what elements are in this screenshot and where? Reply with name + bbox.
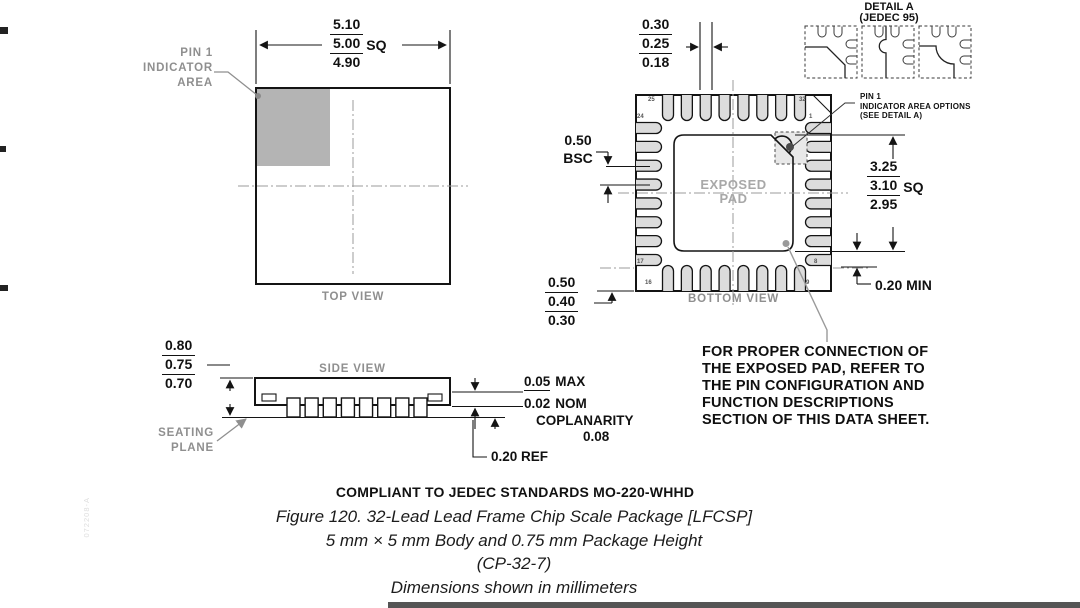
- bottom-view-label: BOTTOM VIEW: [636, 293, 831, 305]
- dim-lead-pitch: 0.50 BSC: [552, 132, 604, 168]
- page-edge-mark: [0, 27, 8, 34]
- lfcsp-package-outline-drawing: PIN 1 INDICATOR AREA TOP VIEW 5.10 5.00S…: [0, 0, 1080, 608]
- dim-lead-thickness: 0.20 REF: [491, 449, 548, 464]
- detail-a-option-1: [805, 26, 857, 78]
- pin1-options-label-line1: PIN 1: [860, 92, 881, 102]
- jedec-compliance-note: COMPLIANT TO JEDEC STANDARDS MO-220-WHHD: [215, 484, 815, 500]
- detail-a-lead-notches: [818, 27, 971, 65]
- exposed-pad-note-line2: THE EXPOSED PAD, REFER TO: [702, 361, 925, 377]
- page-edge-mark: [0, 146, 6, 152]
- pin-number-8: 8: [814, 259, 817, 265]
- exposed-pad-label-line1: EXPOSED: [674, 177, 793, 192]
- detail-a-option-2: [862, 26, 914, 78]
- dim-package-height: 0.80 0.75 0.70: [162, 337, 195, 393]
- side-view-label: SIDE VIEW: [255, 363, 450, 375]
- pin-number-25: 25: [648, 97, 655, 103]
- top-view-label: TOP VIEW: [256, 291, 450, 303]
- exposed-pad-note-line1: FOR PROPER CONNECTION OF: [702, 344, 928, 360]
- dim-lead-width: 0.30 0.25 0.18: [639, 16, 672, 72]
- coplanarity-value: 0.08: [583, 429, 609, 444]
- drawing-revision-watermark: 072208-A: [82, 497, 91, 538]
- exposed-pad-note-dot: [783, 240, 790, 247]
- seating-plane-label-line2: PLANE: [130, 442, 214, 454]
- pin1-options-label-line2: INDICATOR AREA OPTIONS: [860, 102, 971, 112]
- pin1-leader-dot: [255, 93, 261, 99]
- page-edge-mark: [0, 285, 8, 291]
- pin-number-32: 32: [799, 97, 806, 103]
- detail-a-option-3: [919, 26, 971, 78]
- pin1-options-label-line3: (SEE DETAIL A): [860, 111, 922, 121]
- pin-number-24: 24: [637, 114, 644, 120]
- pin1-indicator-dot: [786, 143, 794, 151]
- pin-number-1: 1: [809, 114, 812, 120]
- pin1-indicator-area-label-line1: PIN 1: [133, 47, 213, 59]
- pin-number-16: 16: [645, 280, 652, 286]
- pin1-indicator-shaded-area: [257, 89, 330, 166]
- exposed-pad-note-line4: FUNCTION DESCRIPTIONS: [702, 395, 894, 411]
- dim-standoff-max: 0.05MAX: [524, 374, 585, 391]
- exposed-pad-note-line3: THE PIN CONFIGURATION AND: [702, 378, 925, 394]
- figure-caption-package-code: (CP-32-7): [164, 554, 864, 574]
- pin-number-17: 17: [637, 259, 644, 265]
- detail-a-subtitle: (JEDEC 95): [839, 12, 939, 24]
- dim-lead-length: 0.50 0.40 0.30: [545, 274, 578, 330]
- dim-exposed-pad-size: 3.25 3.10SQ 2.95: [867, 158, 900, 214]
- dim-standoff-nom: 0.02NOM: [524, 396, 587, 411]
- figure-caption-body: 5 mm × 5 mm Body and 0.75 mm Package Hei…: [164, 531, 864, 551]
- dim-body-size: 5.10 5.00SQ 4.90: [330, 16, 363, 72]
- dim-pad-keepout: 0.20 MIN: [875, 277, 932, 293]
- pin-number-9: 9: [806, 280, 809, 286]
- exposed-pad-note-line5: SECTION OF THIS DATA SHEET.: [702, 412, 929, 428]
- exposed-pad-label-line2: PAD: [674, 191, 793, 206]
- figure-caption-title: Figure 120. 32-Lead Lead Frame Chip Scal…: [164, 507, 864, 527]
- next-section-edge-bar: [388, 602, 1080, 608]
- pin1-indicator-area-label-line3: AREA: [133, 77, 213, 89]
- pin1-indicator-area-label-line2: INDICATOR: [133, 62, 213, 74]
- coplanarity-label: COPLANARITY: [536, 413, 634, 428]
- figure-caption-units: Dimensions shown in millimeters: [164, 578, 864, 598]
- seating-plane-label-line1: SEATING: [130, 427, 214, 439]
